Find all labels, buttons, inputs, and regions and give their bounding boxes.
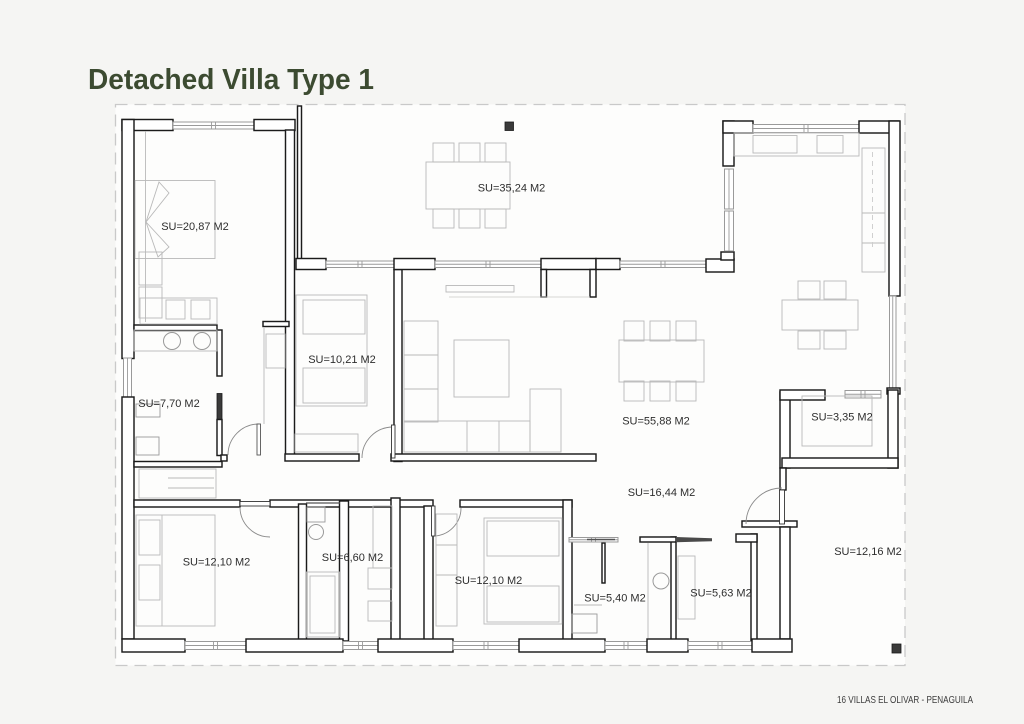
svg-text:SU=20,87 M2: SU=20,87 M2 bbox=[161, 221, 229, 233]
svg-text:SU=6,60 M2: SU=6,60 M2 bbox=[322, 552, 383, 564]
svg-text:SU=16,44 M2: SU=16,44 M2 bbox=[628, 487, 696, 499]
svg-text:SU=7,70 M2: SU=7,70 M2 bbox=[138, 398, 199, 410]
svg-text:SU=5,40 M2: SU=5,40 M2 bbox=[584, 593, 645, 605]
svg-text:SU=55,88 M2: SU=55,88 M2 bbox=[622, 416, 690, 428]
svg-text:SU=10,21 M2: SU=10,21 M2 bbox=[308, 354, 376, 366]
svg-text:SU=12,16 M2: SU=12,16 M2 bbox=[834, 546, 902, 558]
svg-text:SU=3,35 M2: SU=3,35 M2 bbox=[811, 412, 872, 424]
svg-text:SU=35,24 M2: SU=35,24 M2 bbox=[478, 183, 546, 195]
svg-text:SU=12,10 M2: SU=12,10 M2 bbox=[455, 575, 523, 587]
svg-text:Detached Villa Type 1: Detached Villa Type 1 bbox=[88, 64, 374, 96]
svg-text:SU=12,10 M2: SU=12,10 M2 bbox=[183, 557, 251, 569]
svg-text:16 VILLAS EL OLIVAR - PENAGUIL: 16 VILLAS EL OLIVAR - PENAGUILA bbox=[837, 694, 973, 706]
svg-text:SU=5,63 M2: SU=5,63 M2 bbox=[690, 588, 751, 600]
